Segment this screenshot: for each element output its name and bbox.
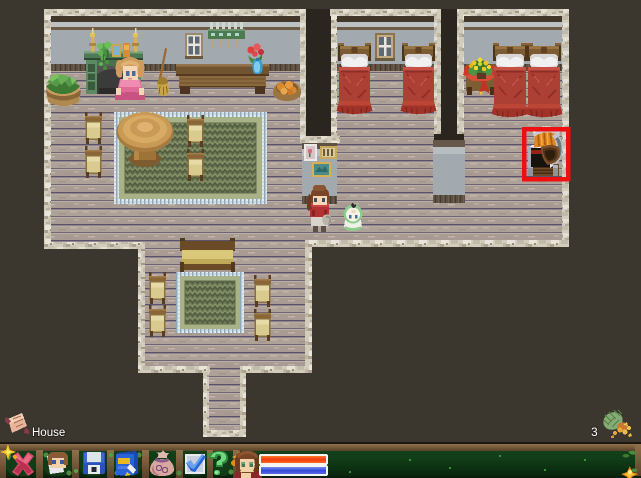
svg-text:House: House [32,427,65,439]
svg-text:3: 3 [591,425,598,439]
